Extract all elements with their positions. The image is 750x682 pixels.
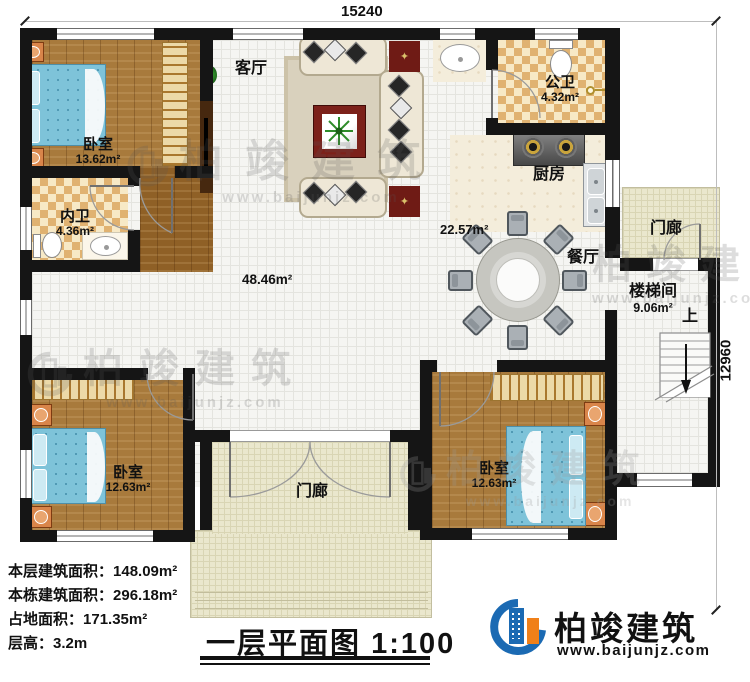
title-underline-thick — [200, 656, 430, 660]
dining-area-value: 22.57m² — [440, 222, 488, 237]
room-area: 4.32m² — [541, 91, 579, 105]
staircase — [655, 333, 714, 402]
room-label-bedroom-bl: 卧室12.63m² — [106, 464, 151, 495]
room-area: 13.62m² — [76, 153, 121, 167]
dimension-right-value: 12960 — [718, 327, 735, 395]
room-label-dining: 餐厅 — [567, 249, 599, 267]
stats-block: 本层建筑面积：148.09m² 本栋建筑面积：296.18m² 占地面积：171… — [8, 560, 177, 656]
room-label-living: 客厅 — [235, 60, 267, 78]
hall-area-value: 48.46m² — [242, 272, 292, 287]
stat-floor-area: 本层建筑面积：148.09m² — [8, 560, 177, 584]
stat-floor-height: 层高：3.2m — [8, 632, 177, 656]
dimension-top-value: 15240 — [338, 3, 386, 20]
room-label-kitchen: 厨房 — [533, 166, 565, 184]
stat-value: 296.18m² — [113, 587, 177, 604]
room-name: 楼梯间 — [629, 283, 677, 300]
room-label-bedroom-br: 卧室12.63m² — [472, 460, 517, 491]
room-area: 4.36m² — [56, 225, 94, 239]
stat-land-area: 占地面积：171.35m² — [8, 608, 177, 632]
room-area: 9.06m² — [629, 301, 677, 315]
room-name: 公卫 — [545, 74, 575, 91]
stat-value: 148.09m² — [113, 563, 177, 580]
room-area: 12.63m² — [472, 477, 517, 491]
door-swings — [90, 70, 700, 497]
stat-value: 171.35m² — [83, 611, 147, 628]
room-name: 卧室 — [113, 464, 143, 481]
room-label-bath-inner: 内卫4.36m² — [56, 208, 94, 239]
room-name: 内卫 — [60, 208, 90, 225]
stat-label: 本层建筑面积： — [8, 563, 113, 580]
floor-plan: ✦ ✦ — [0, 0, 750, 682]
stat-label: 本栋建筑面积： — [8, 587, 113, 604]
brand-logo-icon — [488, 596, 548, 662]
brand-url: www.baijunjz.com — [557, 642, 710, 659]
dimension-line-top — [25, 21, 716, 22]
stairs-up-label: 上 — [682, 308, 698, 326]
room-label-porch-front: 门廊 — [296, 483, 328, 501]
stat-building-area: 本栋建筑面积：296.18m² — [8, 584, 177, 608]
stat-label: 占地面积： — [8, 611, 83, 628]
room-name: 卧室 — [83, 136, 113, 153]
room-area: 12.63m² — [106, 481, 151, 495]
room-label-bath-public: 公卫4.32m² — [541, 74, 579, 105]
room-label-bedroom-tl: 卧室13.62m² — [76, 136, 121, 167]
stat-value: 3.2m — [53, 635, 87, 652]
room-label-stairwell: 楼梯间9.06m² — [629, 283, 677, 316]
room-name: 卧室 — [479, 460, 509, 477]
dimension-line-right — [716, 21, 717, 610]
plant-icon — [325, 117, 353, 145]
room-label-porch-right: 门廊 — [650, 220, 682, 238]
title-underline-thin — [200, 663, 430, 665]
stat-label: 层高： — [8, 635, 53, 652]
